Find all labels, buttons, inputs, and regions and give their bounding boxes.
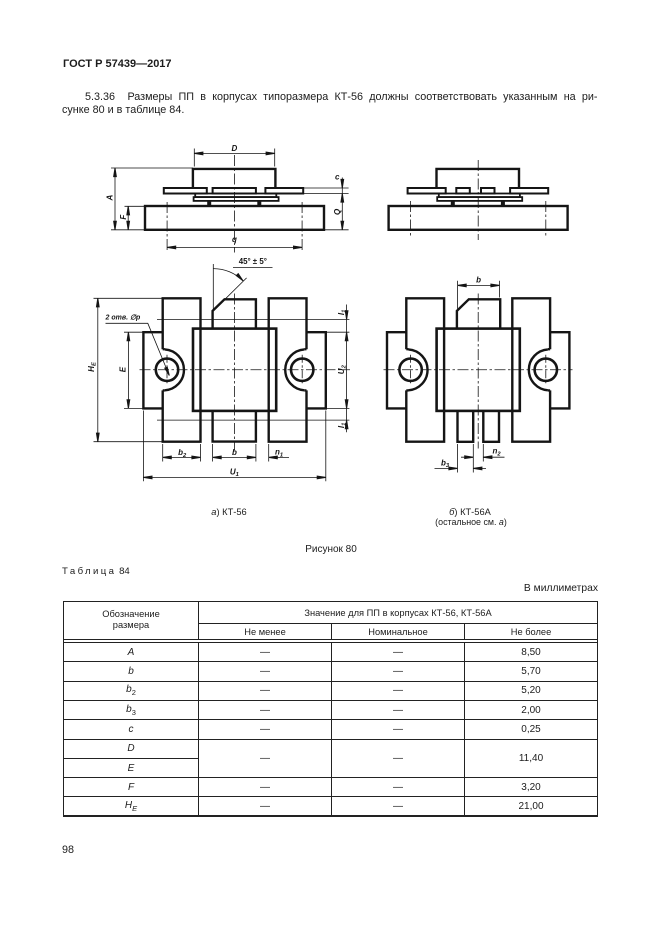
svg-text:U2: U2 <box>337 364 348 374</box>
svg-text:b: b <box>476 276 481 285</box>
svg-text:Q: Q <box>333 208 342 215</box>
svg-text:HE: HE <box>87 361 98 372</box>
svg-text:U1: U1 <box>230 467 239 478</box>
svg-text:n2: n2 <box>492 447 501 458</box>
svg-text:b3: b3 <box>441 458 450 469</box>
svg-text:D: D <box>232 144 238 153</box>
svg-text:E: E <box>119 366 128 372</box>
svg-text:45° ± 5°: 45° ± 5° <box>239 257 267 266</box>
svg-text:b: b <box>232 448 237 457</box>
svg-text:q: q <box>232 235 237 244</box>
svg-text:A: A <box>105 194 114 201</box>
svg-text:2 отв. ∅р: 2 отв. ∅р <box>105 313 142 321</box>
svg-text:c: c <box>335 173 340 182</box>
